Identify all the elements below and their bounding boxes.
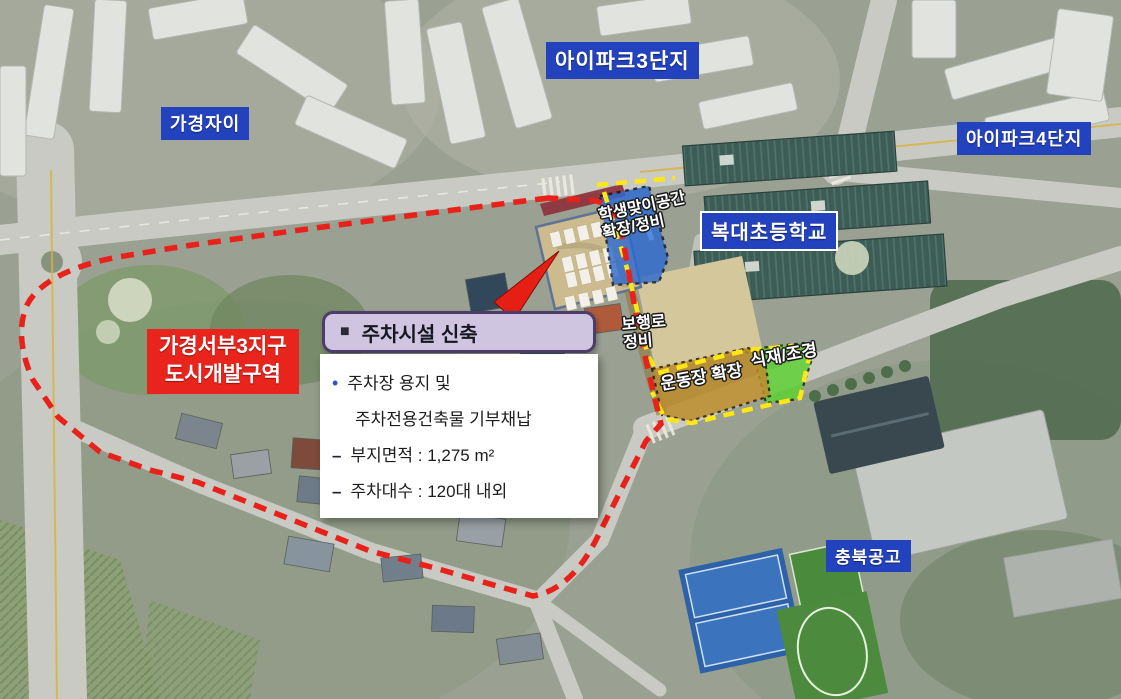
infobox-row-area: – 부지면적 : 1,275 m² xyxy=(332,441,588,466)
infobox-body: • 주차장 용지 및 주차전용건축물 기부채납 – 부지면적 : 1,275 m… xyxy=(320,354,598,518)
label-gyeongjai-apartment: 가경자이 xyxy=(161,107,249,140)
label-chungbuk-technical-school: 충북공고 xyxy=(826,540,911,572)
dash-bullet-icon: – xyxy=(332,446,341,466)
label-ipark4-complex: 아이파크4단지 xyxy=(957,122,1091,155)
district-name-line: 가경서부3지구 xyxy=(159,333,287,361)
dash-bullet-icon: – xyxy=(332,482,341,502)
annotated-satellite-map: 아이파크3단지 가경자이 아이파크4단지 복대초등학교 충북공고 가경서부3지구… xyxy=(0,0,1121,699)
label-bokdae-elementary-school: 복대초등학교 xyxy=(700,211,838,251)
purpose-line2: 주차전용건축물 기부채납 xyxy=(355,405,532,430)
purpose-line1: 주차장 용지 및 xyxy=(347,369,450,394)
infobox-row-capacity: – 주차대수 : 120대 내외 xyxy=(332,477,588,502)
walkway-zone-line2: 정비 xyxy=(623,331,669,353)
parking-capacity-value: 주차대수 : 120대 내외 xyxy=(350,477,507,502)
site-area-value: 부지면적 : 1,275 m² xyxy=(350,441,494,466)
district-type-line: 도시개발구역 xyxy=(159,361,287,389)
dot-bullet-icon: • xyxy=(332,373,338,394)
infobox-title: 주차시설 신축 xyxy=(362,318,478,347)
infobox-header: ■ 주차시설 신축 xyxy=(322,311,596,353)
infobox-row-purpose: • 주차장 용지 및 xyxy=(332,369,588,394)
label-walkway-zone: 보행로 정비 xyxy=(621,313,668,353)
square-bullet-icon: ■ xyxy=(340,323,350,341)
infobox-row-purpose-cont: 주차전용건축물 기부채납 xyxy=(332,405,588,430)
label-development-district: 가경서부3지구 도시개발구역 xyxy=(147,329,299,394)
label-ipark3-complex: 아이파크3단지 xyxy=(546,42,699,79)
